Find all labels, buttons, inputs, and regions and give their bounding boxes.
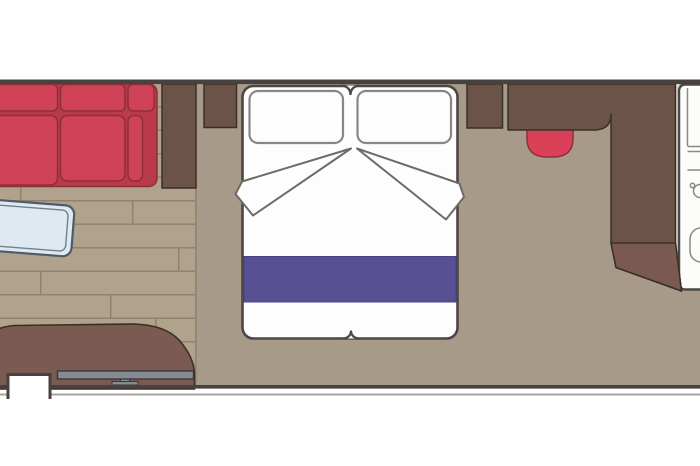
floor-plan [0, 0, 700, 466]
pillow-right [358, 91, 452, 143]
plank-joint [40, 272, 42, 294]
tv [58, 371, 194, 379]
bathroom-outline [679, 85, 700, 290]
bottom-wall [0, 385, 700, 389]
bathroom [676, 84, 700, 290]
wall-notch [8, 373, 50, 399]
bottom-wall-outer-line [0, 394, 700, 396]
sofa-back-cushion [0, 85, 58, 112]
sofa-back-cushion [128, 85, 154, 112]
stool [527, 127, 573, 158]
pillow-left [250, 91, 344, 143]
sofa-back-cushion [61, 85, 126, 112]
coffee-table [0, 199, 75, 257]
sofa-seat-cushion [0, 116, 58, 186]
coffee-table-top [0, 199, 75, 257]
tv-bracket-base [112, 382, 138, 386]
wall-notch-fill [8, 373, 50, 399]
plank-joint [178, 249, 180, 271]
bed-runner [244, 257, 456, 303]
sofa [0, 84, 157, 187]
floor-plan-drawing [0, 0, 700, 466]
sofa-seat-cushion [128, 116, 143, 182]
nightstand-right [467, 84, 503, 128]
wardrobe-left [162, 84, 196, 188]
plank-joint [110, 296, 112, 318]
bed [236, 86, 465, 339]
top-wall [0, 80, 700, 85]
sofa-seat-cushion [61, 116, 126, 182]
plank-joint [132, 202, 134, 224]
nightstand-left [204, 84, 237, 128]
